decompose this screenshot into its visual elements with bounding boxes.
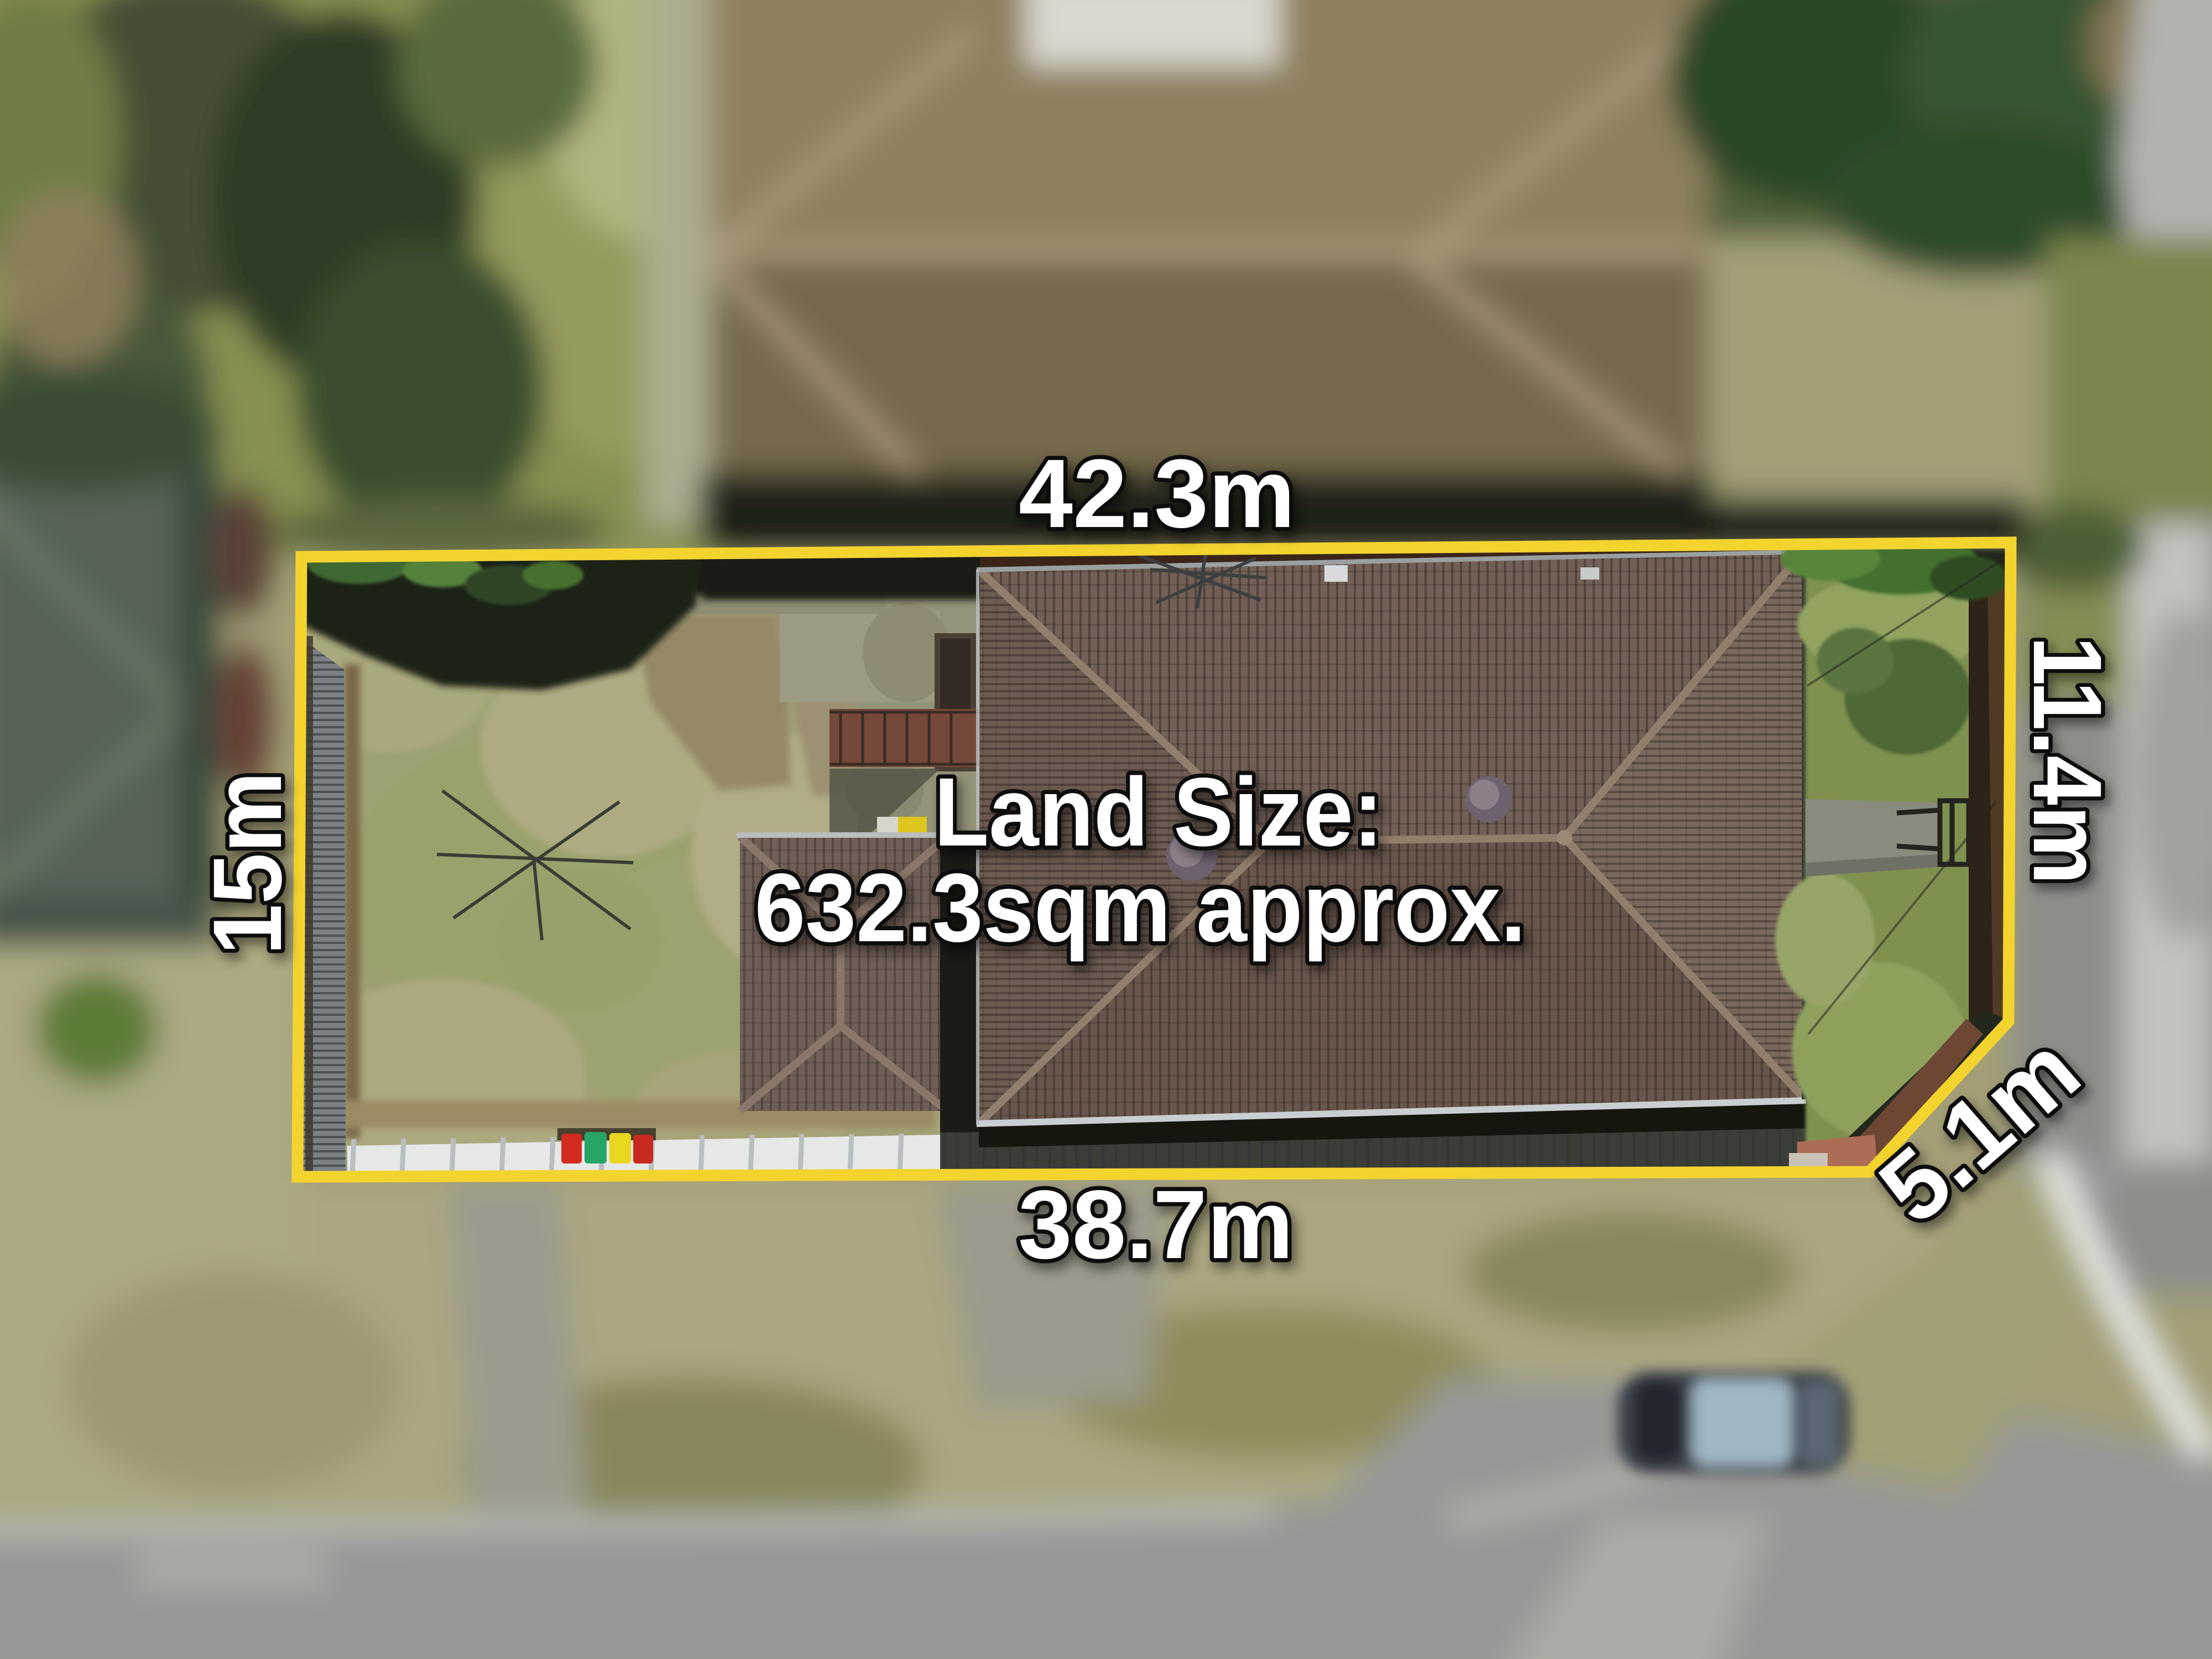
- svg-text:632.3sqm approx.: 632.3sqm approx.: [755, 854, 1526, 962]
- svg-text:42.3m: 42.3m: [1019, 440, 1295, 548]
- svg-text:15m: 15m: [194, 771, 302, 955]
- svg-text:11.4m: 11.4m: [2013, 636, 2121, 885]
- svg-text:38.7m: 38.7m: [1018, 1171, 1293, 1279]
- svg-text:Land Size:: Land Size:: [934, 758, 1383, 867]
